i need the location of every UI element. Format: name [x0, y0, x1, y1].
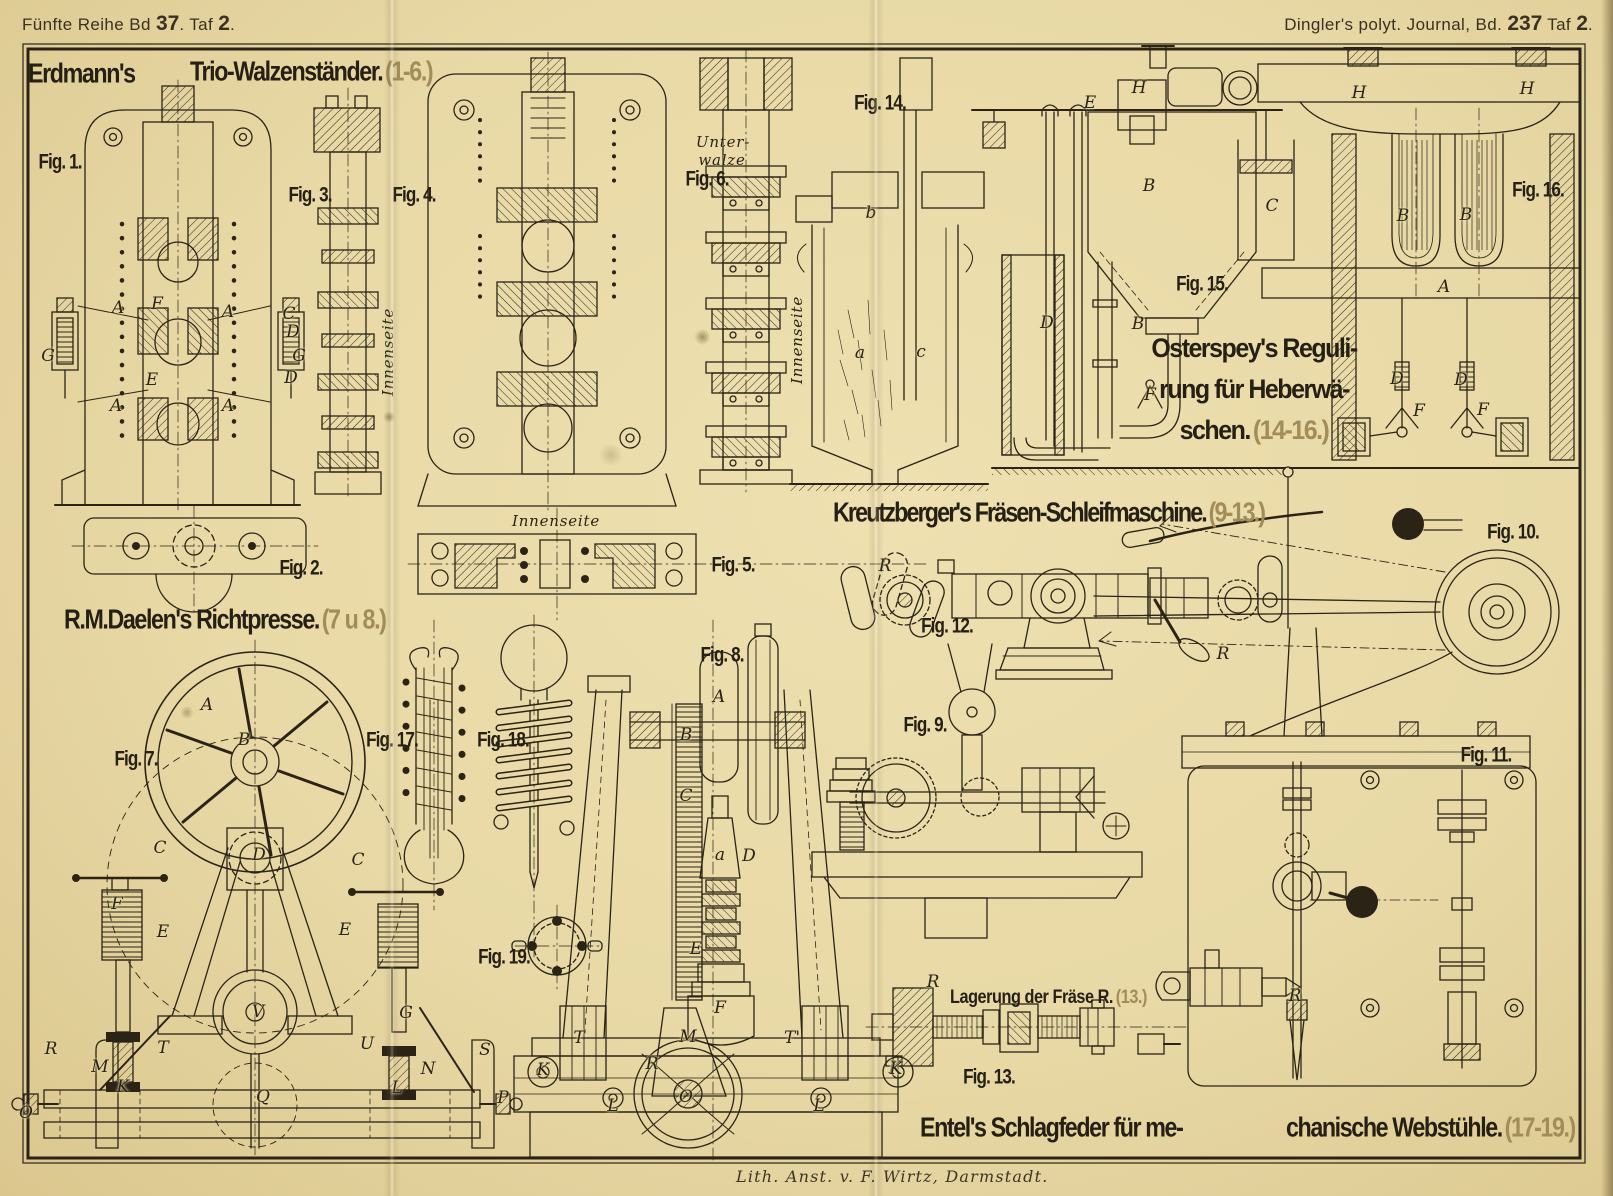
fig1-drawing — [52, 80, 304, 512]
engraving-artwork — [0, 0, 1613, 1196]
paper-stain — [180, 706, 194, 719]
osterspey-line-3: schen.(14-16.) — [1134, 410, 1374, 451]
paper-fold-crease — [384, 0, 400, 1196]
journal-plate-page: Fünfte Reihe Bd 37. Taf 2. Dingler's pol… — [0, 0, 1613, 1196]
paper-stain — [598, 444, 624, 466]
header-left-post: . — [230, 15, 235, 34]
fig12-drawing — [839, 550, 1213, 679]
fig14-drawing — [790, 58, 988, 491]
header-right-plate: 2 — [1576, 12, 1588, 35]
section-title-daelen-text: R.M.Daelen's Richtpresse. — [64, 604, 319, 635]
caption-range-lagerung: (13.) — [1116, 985, 1147, 1007]
section-title-daelen: R.M.Daelen's Richtpresse.(7 u 8.) — [64, 604, 385, 636]
fig2-drawing — [72, 506, 318, 616]
fig11-drawing — [1156, 762, 1536, 1086]
fig6-drawing — [700, 50, 792, 492]
fig8-drawing — [514, 620, 913, 1160]
scan-edge-shadow — [1601, 0, 1613, 1196]
caption-lagerung: Lagerung der Fräse R.(13.) — [950, 985, 1147, 1009]
section-title-entel-part2: chanische Webstühle.(17-19.) — [1286, 1112, 1575, 1144]
header-left-volume: 37 — [156, 12, 179, 35]
header-journal-ref: Dingler's polyt. Journal, Bd. 237 Taf 2. — [1284, 12, 1593, 36]
paper-stain — [383, 411, 395, 423]
paper-fold-crease — [868, 0, 884, 1196]
osterspey-line-3-text: schen. — [1180, 415, 1250, 445]
fig9-drawing — [812, 644, 1142, 938]
fig18-drawing — [494, 615, 574, 960]
lithographer-credit: Lith. Anst. v. F. Wirtz, Darmstadt. — [736, 1167, 1049, 1186]
header-right-pre: Dingler's polyt. Journal, Bd. — [1284, 15, 1507, 34]
caption-lagerung-text: Lagerung der Fräse R. — [950, 985, 1113, 1007]
header-left-pre: Fünfte Reihe Bd — [22, 15, 156, 34]
fig3-drawing — [314, 88, 381, 500]
section-title-osterspey: Osterspey's Reguli- rung für Heberwä- sc… — [1134, 328, 1374, 451]
section-title-entel-part2-text: chanische Webstühle. — [1286, 1112, 1502, 1143]
osterspey-line-2: rung für Heberwä- — [1134, 369, 1374, 410]
section-title-kreutzberger-text: Kreutzberger's Fräsen-Schleifmaschine. — [833, 497, 1206, 528]
section-title-kreutzberger: Kreutzberger's Fräsen-Schleifmaschine.(9… — [833, 497, 1264, 529]
fig17-drawing — [404, 620, 463, 910]
header-left-plate: 2 — [218, 12, 230, 35]
header-left-mid: . Taf — [179, 15, 218, 34]
section-title-erdmann-text: Trio-Walzenständer. — [190, 56, 382, 87]
osterspey-line-1: Osterspey's Reguli- — [1134, 328, 1374, 369]
section-title-erdmann-name: Erdmann's — [28, 58, 135, 90]
header-right-mid: Taf — [1542, 15, 1576, 34]
section-title-entel-part1: Entel's Schlagfeder für me- — [920, 1112, 1182, 1144]
header-right-volume: 237 — [1507, 12, 1542, 35]
fig7-drawing — [12, 640, 522, 1155]
section-range-daelen: (7 u 8.) — [322, 604, 386, 635]
header-series-ref: Fünfte Reihe Bd 37. Taf 2. — [22, 12, 235, 36]
paper-stain — [694, 329, 711, 345]
section-range-osterspey: (14-16.) — [1253, 415, 1329, 445]
section-range-entel: (17-19.) — [1505, 1112, 1575, 1143]
fig4-drawing — [418, 52, 676, 512]
section-range-kreutzberger: (9-13.) — [1209, 497, 1264, 528]
header-right-post: . — [1588, 15, 1593, 34]
